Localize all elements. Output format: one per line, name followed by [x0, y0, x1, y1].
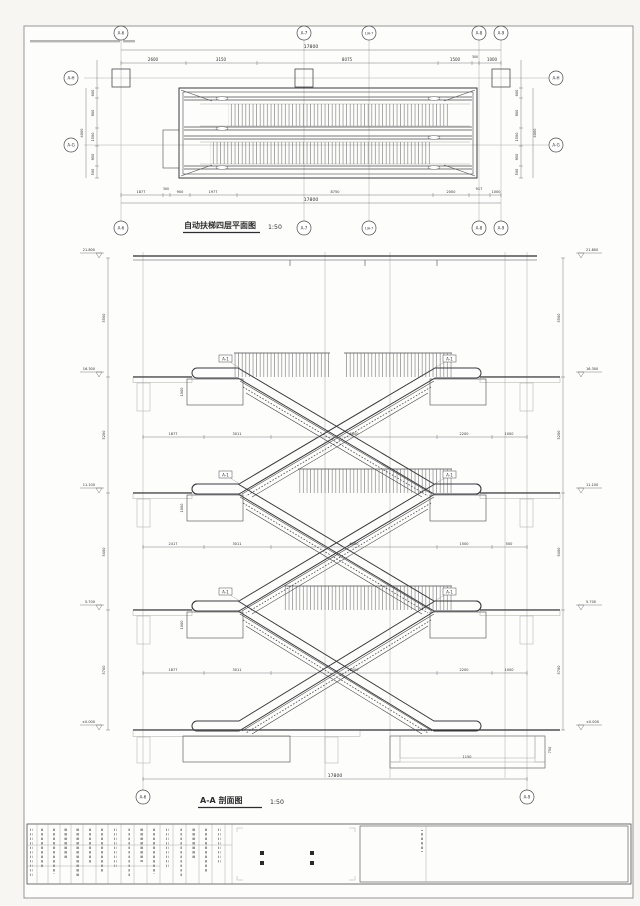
dim-label: 3011 — [233, 542, 242, 546]
escalator-tag: A-1 — [222, 590, 229, 595]
section-scale: 1:50 — [270, 799, 284, 806]
dim-label: 1877 — [169, 668, 178, 672]
sheet-note-smudge-2 — [123, 40, 135, 42]
level-label: 21.800 — [586, 248, 598, 252]
dim-label: 1000 — [180, 504, 184, 513]
escalator-tag: A-1 — [446, 473, 453, 478]
escalator-tag: A-1 — [222, 473, 229, 478]
dim-label: 900 — [91, 110, 95, 117]
dim-label: 1977 — [209, 190, 218, 194]
dim-label: 17800 — [304, 44, 319, 50]
dim-label: 1500 — [91, 133, 95, 142]
dim-label: 6000 — [350, 542, 359, 546]
dim-label: 500 — [515, 169, 519, 176]
dim-label: 1000 — [505, 432, 514, 436]
level-label: 11.100 — [586, 483, 598, 487]
dim-label: 2417 — [169, 542, 178, 546]
level-label: ±0.000 — [82, 720, 95, 724]
escalator-steps-plan-upper — [228, 104, 448, 126]
dim-label: 917 — [476, 187, 483, 191]
dim-label: 8750 — [331, 190, 340, 194]
level-label: 5.700 — [85, 600, 95, 604]
dim-label: 600 — [91, 90, 95, 97]
dim-label: 3150 — [216, 57, 227, 62]
escalator-tag: A-1 — [222, 357, 229, 362]
dim-label: 5700 — [102, 666, 106, 675]
sheet-note-smudge — [30, 40, 120, 42]
dim-label: 6000 — [350, 668, 359, 672]
dim-label: 750 — [548, 747, 552, 754]
level-label: ±0.000 — [586, 720, 599, 724]
escalator-steps-plan-lower — [210, 142, 430, 164]
dim-label: 3011 — [233, 432, 242, 436]
plan-title: 自动扶梯四层平面图 — [184, 220, 256, 230]
grid-bubble-label: A-H — [552, 76, 559, 81]
dim-label: 5200 — [557, 431, 561, 440]
grid-bubble-label: A-G — [552, 143, 559, 148]
dim-label: 1150 — [463, 755, 472, 759]
dim-label: 1877 — [137, 190, 146, 194]
dim-label: 600 — [515, 90, 519, 97]
dim-label: 5500 — [557, 314, 561, 323]
escalator-tag: A-1 — [446, 590, 453, 595]
dim-label: 5500 — [102, 314, 106, 323]
dim-label: 1877 — [169, 432, 178, 436]
dim-label: 8075 — [342, 57, 353, 62]
dim-label: 5400 — [102, 548, 106, 557]
drawing-page: 17800 2600 3150 8075 1500 300 1000 1877 … — [0, 0, 640, 906]
dim-label: 1500 — [515, 133, 519, 142]
dim-label: 950 — [91, 154, 95, 161]
dim-label: 17800 — [328, 773, 343, 779]
dim-label: 5200 — [102, 431, 106, 440]
dim-label: 4000 — [80, 129, 84, 138]
dim-label: 1000 — [180, 388, 184, 397]
dim-label: 2000 — [447, 190, 456, 194]
dim-label: 1000 — [180, 621, 184, 630]
grid-bubble-label: A-7 — [301, 226, 308, 231]
dim-label: 2200 — [460, 432, 469, 436]
grid-bubble-label: A-6 — [118, 226, 125, 231]
grid-bubble-label: A-7 — [301, 31, 308, 36]
dim-label: 300 — [472, 55, 478, 59]
dim-label: 300 — [163, 187, 169, 191]
dim-label: 900 — [515, 110, 519, 117]
dim-label: 1500 — [460, 542, 469, 546]
dim-label: 950 — [515, 154, 519, 161]
section-title: A-A 剖面图 — [200, 795, 243, 805]
dim-label: 3011 — [233, 668, 242, 672]
level-label: 5.700 — [586, 600, 596, 604]
grid-bubble-label: A-6 — [118, 31, 125, 36]
grid-bubble-label: A-9 — [498, 226, 505, 231]
dim-label: 500 — [91, 169, 95, 176]
grid-bubble-label: A-9 — [498, 31, 505, 36]
dim-label: 5400 — [557, 548, 561, 557]
grid-bubble-label: A-9 — [524, 795, 531, 800]
dim-label: 900 — [177, 190, 184, 194]
dim-label: 500 — [506, 542, 513, 546]
level-label: 16.300 — [83, 367, 95, 371]
level-label: 11.100 — [83, 483, 95, 487]
level-label: 21.800 — [83, 248, 95, 252]
dim-label: 5700 — [557, 666, 561, 675]
dim-label: 2200 — [460, 668, 469, 672]
cad-sheet: 17800 2600 3150 8075 1500 300 1000 1877 … — [0, 0, 640, 906]
escalator-tag: A-1 — [446, 357, 453, 362]
dim-label: 2600 — [148, 57, 159, 62]
plan-scale: 1:50 — [268, 224, 282, 231]
grid-bubble-label: A-6 — [140, 795, 147, 800]
dim-label: 6000 — [350, 432, 359, 436]
grid-bubble-label: A-G — [67, 143, 74, 148]
level-label: 16.300 — [586, 367, 598, 371]
dim-label: 1000 — [487, 57, 498, 62]
dim-label: 17800 — [304, 197, 319, 203]
grid-bubble-label: A-8 — [476, 226, 483, 231]
grid-bubble-label: 1/A-7 — [365, 227, 373, 231]
grid-bubble-label: 1/A-7 — [365, 32, 373, 36]
grid-bubble-label: A-8 — [476, 31, 483, 36]
grid-bubble-label: A-H — [67, 76, 74, 81]
dim-label: 1000 — [492, 190, 501, 194]
dim-label: 1500 — [450, 57, 461, 62]
dim-label: 1000 — [505, 668, 514, 672]
dim-label: 4000 — [533, 129, 537, 138]
